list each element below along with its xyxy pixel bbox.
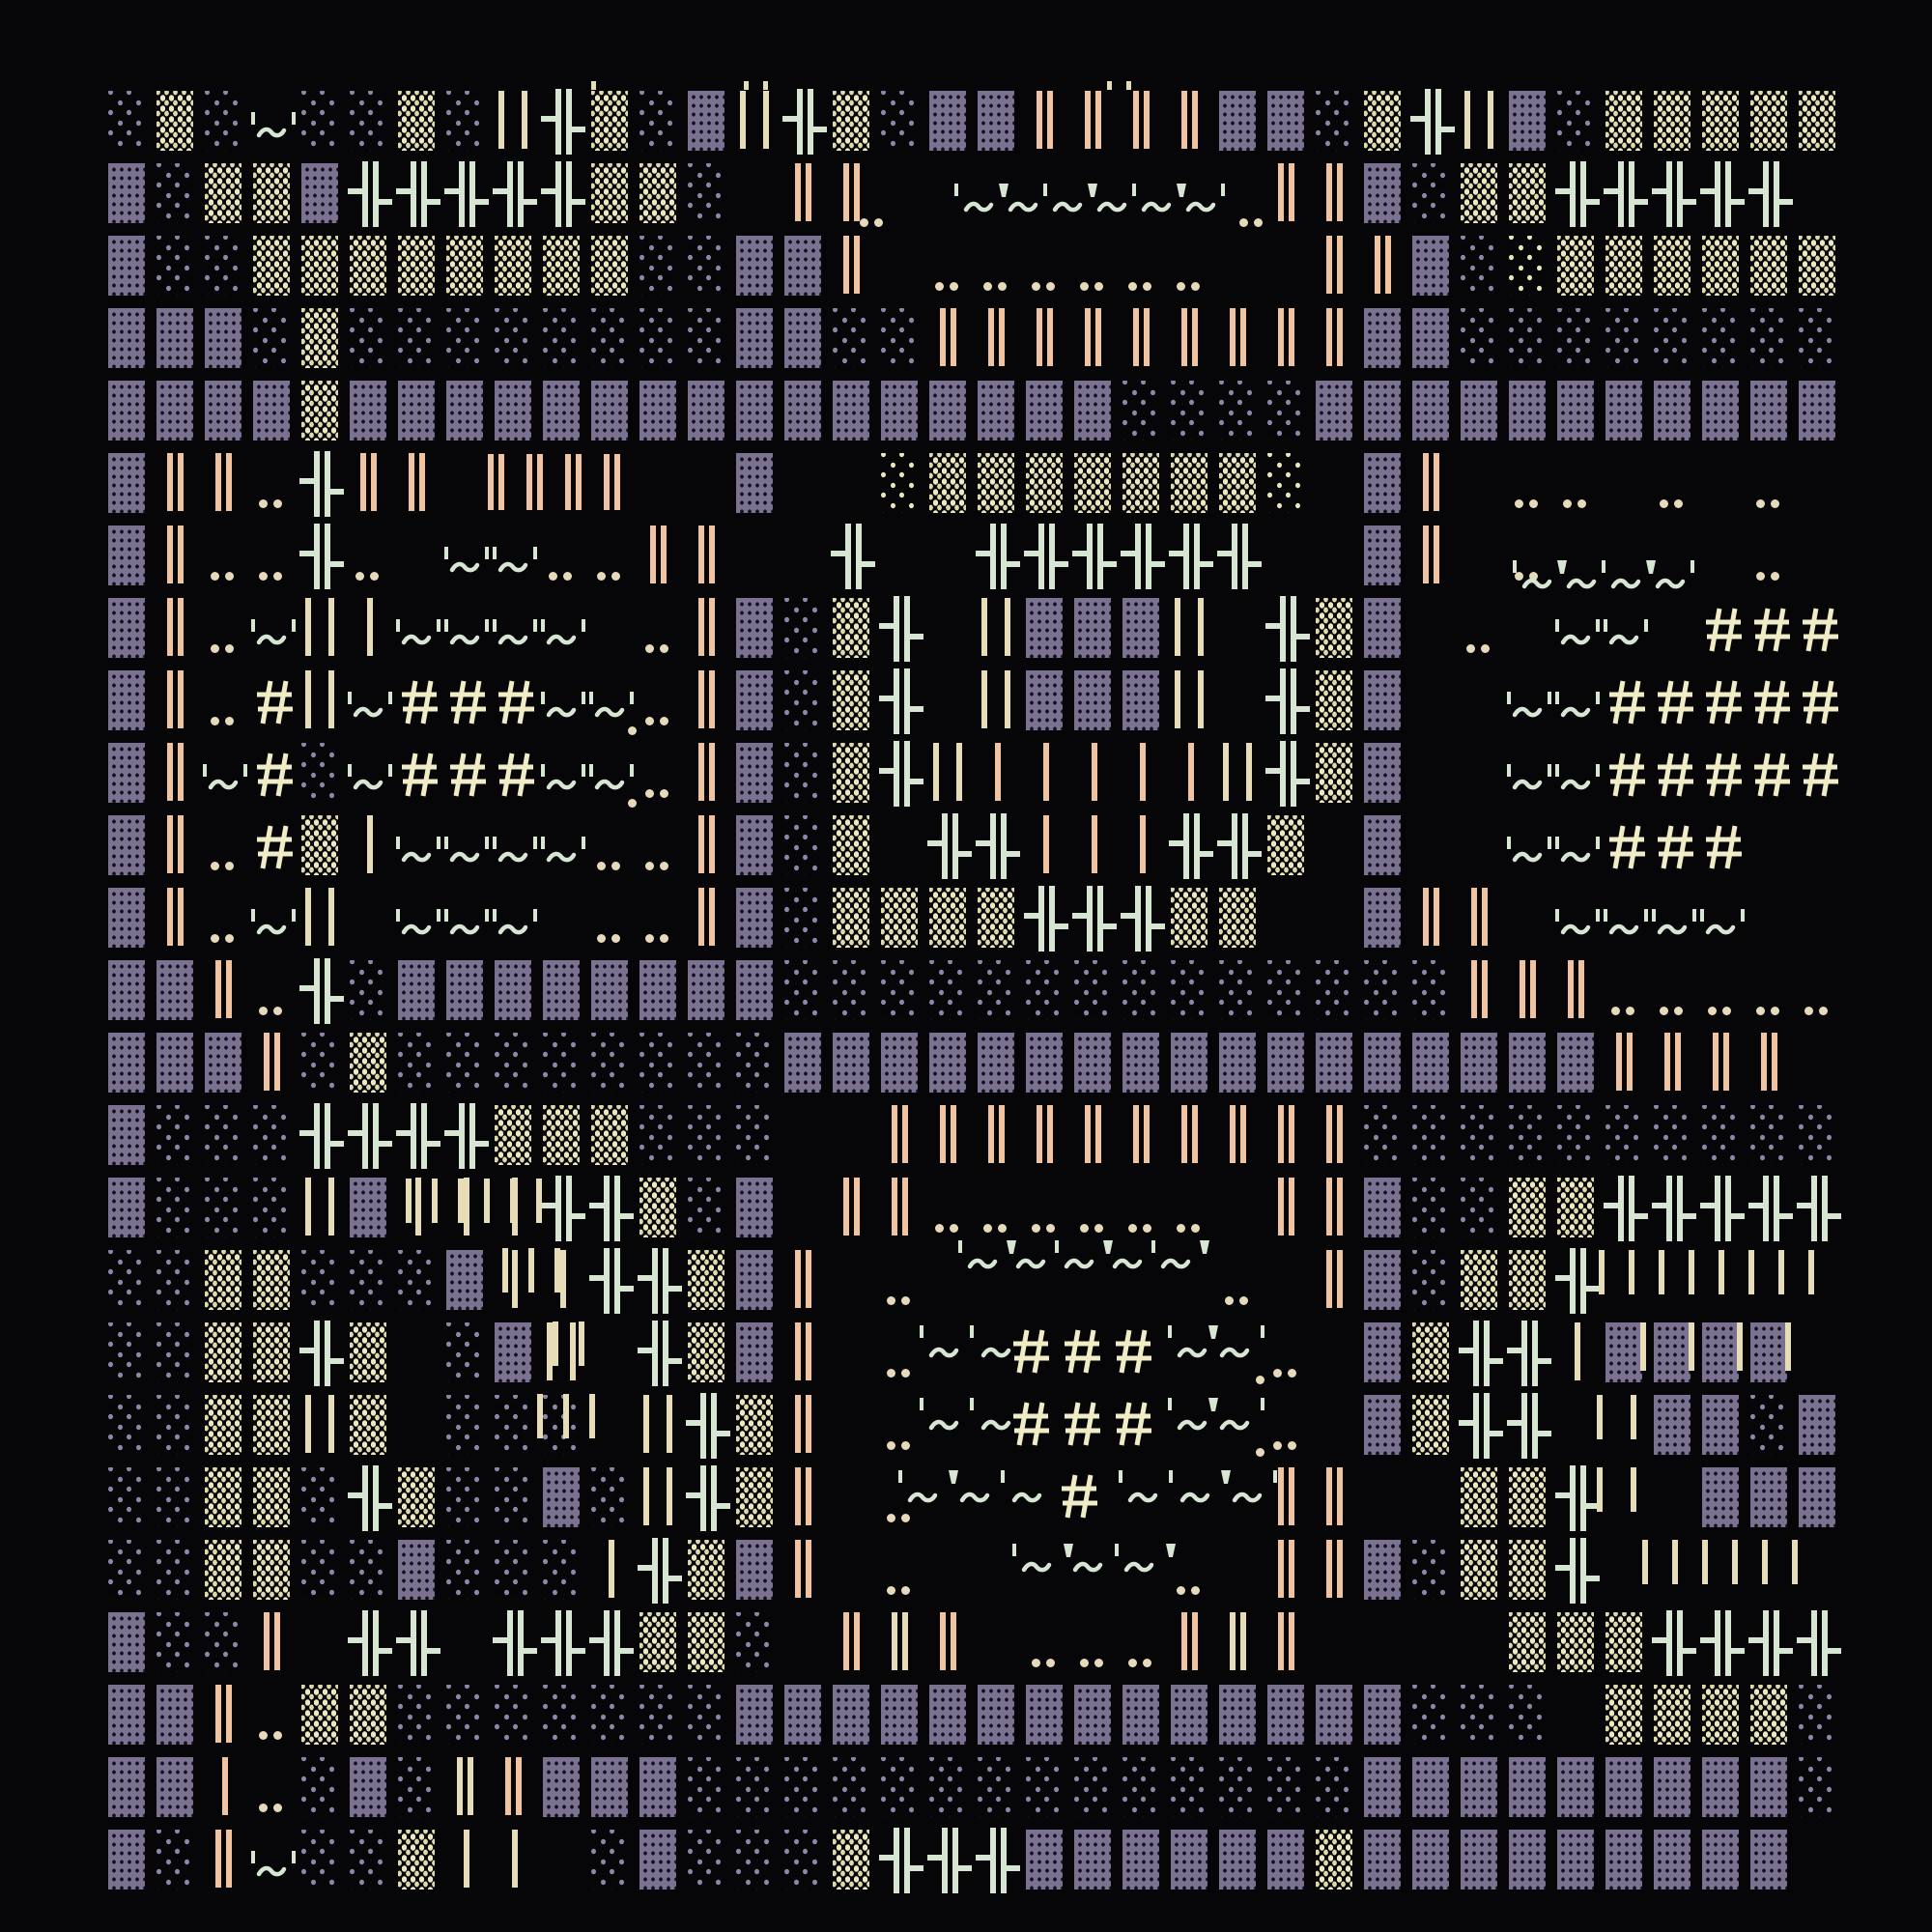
sparse-purple-dot-block (688, 308, 724, 368)
dot-pair-icon (1804, 1007, 1830, 1016)
vertical-bar-glyph (1689, 1322, 1694, 1371)
dense-purple-block (784, 1685, 821, 1745)
dot-pair-icon (211, 644, 236, 654)
dense-purple-block (1605, 1322, 1642, 1382)
cross-icon (1652, 1610, 1696, 1676)
cross-icon (976, 813, 1020, 879)
dense-purple-block (1364, 526, 1401, 585)
cross-icon (1121, 524, 1165, 589)
sparse-purple-dot-block (1557, 91, 1594, 151)
quote-tick-icon (1555, 619, 1559, 632)
dot-pair-icon (887, 1441, 912, 1451)
sparse-purple-dot-block (688, 1105, 724, 1165)
dense-cream-dot-block (1750, 1685, 1787, 1745)
dense-cream-dot-block (1509, 1467, 1546, 1527)
double-quote-tick-icon (1064, 1544, 1073, 1557)
sparse-purple-dot-block (398, 1250, 435, 1310)
quote-tilde-quote-glyph (396, 909, 440, 938)
tilde-icon (1609, 923, 1638, 935)
tilde-icon (257, 923, 286, 935)
dense-cream-dot-block (1316, 743, 1352, 803)
vertical-bar-glyph (1230, 1612, 1246, 1670)
sparse-purple-dot-block (156, 1322, 193, 1382)
dense-purple-block (1509, 1757, 1546, 1817)
hash-icon (1657, 823, 1693, 871)
cross-icon (638, 1321, 682, 1386)
sparse-purple-dot-block (1171, 960, 1207, 1020)
vertical-bar-glyph (264, 1612, 280, 1670)
dense-purple-block (1122, 1830, 1159, 1889)
sparse-purple-dot-block (446, 1322, 483, 1382)
quote-tick-icon (954, 184, 958, 196)
sparse-purple-dot-block (591, 1830, 628, 1889)
dense-purple-block (1799, 381, 1835, 440)
sparse-purple-dot-block (301, 1467, 338, 1527)
vertical-bar-glyph (1778, 1250, 1784, 1294)
dense-purple-block (1461, 1830, 1497, 1889)
quote-tick-icon (1001, 1470, 1005, 1483)
dot-pair-icon (1080, 282, 1105, 292)
vertical-bar-glyph (409, 453, 425, 511)
dense-cream-dot-block (1074, 453, 1111, 513)
dot-pair-icon (259, 1731, 284, 1741)
cross-icon (1072, 524, 1117, 589)
dense-purple-block (1557, 1830, 1594, 1889)
vertical-bar-glyph (1037, 91, 1053, 149)
dense-purple-block (446, 381, 483, 440)
vertical-bar-glyph (795, 163, 811, 221)
sparse-purple-dot-block (156, 1178, 193, 1237)
dense-purple-block (301, 163, 338, 223)
vertical-bar-glyph (1326, 1178, 1343, 1236)
vertical-bar-glyph (1631, 1395, 1636, 1439)
vertical-bar-glyph (1326, 1250, 1343, 1308)
dense-purple-block (543, 1467, 580, 1527)
dense-purple-block (639, 960, 676, 1020)
dense-cream-dot-block (1799, 236, 1835, 296)
dense-cream-dot-block (1654, 236, 1690, 296)
cross-icon (541, 1176, 585, 1241)
quote-tick-icon (1043, 184, 1047, 196)
sparse-purple-dot-block (833, 308, 869, 368)
dot-pair-icon (1466, 644, 1492, 654)
sparse-purple-dot-block (156, 1830, 193, 1889)
vertical-bar-glyph (940, 308, 956, 366)
dense-cream-dot-block (736, 1467, 773, 1527)
dense-purple-block (736, 670, 773, 730)
dense-cream-dot-block (1557, 1612, 1594, 1672)
edge-stub-glyph (591, 81, 596, 90)
dense-cream-dot-block (205, 163, 241, 223)
sparse-purple-dot-block (1122, 1757, 1159, 1817)
dense-purple-block (1364, 1322, 1401, 1382)
vertical-bar-glyph (698, 526, 715, 583)
quote-tick-icon (1168, 1325, 1172, 1338)
dense-purple-block (1364, 1757, 1401, 1817)
tilde-icon (450, 561, 479, 573)
quote-tilde-quote-glyph (251, 112, 296, 141)
tilde-icon (1561, 779, 1590, 790)
dot-pair-icon (1177, 1224, 1202, 1234)
vertical-bar-glyph (464, 1830, 469, 1888)
dense-cream-dot-block (688, 1250, 724, 1310)
dense-purple-block (1509, 91, 1546, 151)
dense-purple-block (784, 308, 821, 368)
quote-tilde-quote-glyph (493, 547, 537, 576)
tilde-icon (209, 779, 238, 790)
vertical-bar-glyph (526, 454, 543, 510)
tilde-icon (498, 634, 527, 645)
dot-pair-icon (259, 572, 284, 582)
sparse-purple-dot-block (205, 1105, 241, 1165)
quote-tick-icon (348, 764, 352, 777)
sparse-purple-dot-block (495, 308, 531, 368)
sparse-purple-dot-block (398, 1033, 435, 1093)
dense-purple-block (1364, 598, 1401, 658)
dense-purple-block (1702, 1830, 1739, 1889)
dense-cream-dot-block (1316, 670, 1352, 730)
sparse-purple-dot-block (350, 308, 386, 368)
tilde-icon (595, 779, 624, 790)
cross-icon (589, 1610, 634, 1676)
vertical-bar-glyph (305, 1395, 334, 1453)
dot-pair-icon (1273, 1369, 1298, 1378)
sparse-purple-dot-block (1461, 1105, 1497, 1165)
sparse-purple-dot-block (253, 308, 290, 368)
tilde-icon (1220, 1419, 1249, 1431)
vertical-bar-glyph (1326, 163, 1343, 221)
dense-purple-block (1364, 308, 1401, 368)
sparse-purple-dot-block (1364, 960, 1401, 1020)
quote-tick-icon (348, 692, 352, 704)
sparse-purple-dot-block (301, 1250, 338, 1310)
quote-tick-icon (396, 619, 400, 632)
quote-tick-icon (1507, 692, 1511, 704)
cross-icon (1507, 1393, 1551, 1459)
dense-purple-block (253, 381, 290, 440)
vertical-bar-glyph (589, 1394, 595, 1438)
quote-tick-icon (437, 619, 440, 632)
sparse-purple-dot-block (591, 308, 628, 368)
dense-purple-block (156, 1757, 193, 1817)
sparse-purple-dot-block (1750, 1395, 1787, 1455)
dense-purple-block (156, 1685, 193, 1745)
quote-tick-icon (1012, 1544, 1016, 1556)
vertical-bar-glyph (1326, 1467, 1343, 1525)
dense-purple-block (1122, 1685, 1159, 1745)
sparse-purple-dot-block (495, 1540, 531, 1600)
hash-icon (1802, 678, 1838, 726)
dense-cream-dot-block (156, 91, 193, 151)
dense-purple-block (398, 960, 435, 1020)
quote-tick-icon (1151, 1240, 1155, 1253)
dense-purple-block (639, 1830, 676, 1889)
sparse-purple-dot-block (688, 1685, 724, 1745)
vertical-bar-glyph (563, 1394, 569, 1438)
quote-tilde-quote-glyph (1555, 837, 1600, 866)
quote-tick-icon (1555, 764, 1559, 777)
vertical-bar-glyph (1597, 1467, 1603, 1512)
dense-cream-dot-block (833, 1830, 869, 1889)
quote-tilde-quote-glyph (1507, 837, 1551, 866)
dense-purple-block (1364, 381, 1401, 440)
quote-tick-icon (1596, 692, 1600, 704)
sparse-purple-dot-block (205, 91, 241, 151)
vertical-bar-glyph (1181, 1612, 1198, 1670)
cross-icon (348, 1610, 392, 1676)
cross-icon (879, 741, 923, 807)
sparse-purple-dot-block (495, 1395, 531, 1455)
tilde-icon (547, 779, 576, 790)
quote-tilde-quote-glyph (444, 619, 489, 648)
vertical-bar-glyph (1230, 308, 1246, 366)
quote-tick-icon (251, 1851, 255, 1863)
dense-purple-block (1654, 1322, 1690, 1382)
cross-icon (1652, 161, 1696, 227)
dense-purple-block (350, 1178, 386, 1237)
sparse-purple-dot-block (639, 1033, 676, 1093)
quote-tick-icon (485, 547, 489, 559)
quote-tilde-quote-glyph (1555, 764, 1600, 793)
vertical-bar-glyph (432, 1179, 438, 1223)
dot-pair-icon (628, 799, 638, 809)
sparse-purple-dot-block (1799, 308, 1835, 368)
sparse-purple-dot-block (784, 815, 821, 875)
dot-pair-icon (887, 1296, 912, 1306)
vertical-bar-glyph (305, 1178, 334, 1236)
dense-purple-block (1171, 1685, 1207, 1745)
vertical-bar-glyph (215, 1685, 232, 1743)
quote-tick-icon (1596, 837, 1600, 849)
vertical-bar-glyph (1326, 236, 1343, 294)
sparse-purple-dot-block (156, 1250, 193, 1310)
tilde-icon (257, 127, 286, 138)
vertical-bar-glyph (1043, 743, 1049, 801)
dense-purple-block (1557, 1033, 1594, 1093)
dense-purple-block (591, 381, 628, 440)
tilde-icon (1561, 706, 1590, 718)
cross-icon (1604, 1176, 1648, 1241)
dense-cream-dot-block (205, 1467, 241, 1527)
dense-purple-block (736, 1178, 773, 1237)
vertical-bar-glyph (940, 1105, 956, 1163)
quote-tick-icon (1555, 909, 1559, 922)
sparse-purple-dot-block (784, 1757, 821, 1817)
cross-icon (493, 161, 537, 227)
dense-cream-dot-block (639, 1178, 676, 1237)
quote-tick-icon (292, 909, 296, 922)
sparse-purple-dot-block (108, 1250, 145, 1310)
vertical-bar-glyph (1092, 743, 1097, 801)
sparse-purple-dot-block (350, 1250, 386, 1310)
dot-pair-icon (1563, 499, 1588, 509)
quote-tick-icon (251, 619, 255, 632)
sparse-purple-dot-block (446, 1395, 483, 1455)
dense-purple-block (929, 91, 966, 151)
sparse-purple-dot-block (398, 308, 435, 368)
sparse-purple-dot-block (1412, 1685, 1449, 1745)
vertical-bar-glyph (843, 163, 860, 221)
dense-purple-block (1364, 670, 1401, 730)
quote-tick-icon (292, 112, 296, 125)
dense-cream-dot-block (253, 236, 290, 296)
dense-cream-dot-block (1509, 163, 1546, 223)
cross-icon (1700, 161, 1745, 227)
dense-cream-dot-block (301, 308, 338, 368)
quote-tick-icon (1596, 764, 1600, 777)
vertical-bar-glyph (484, 1179, 490, 1223)
quote-tilde-quote-glyph (1604, 619, 1648, 648)
dot-pair-icon (597, 934, 622, 944)
dot-pair-icon (1256, 1448, 1265, 1458)
vertical-bar-glyph (643, 1395, 672, 1453)
sparse-purple-dot-block (205, 1178, 241, 1237)
vertical-bar-glyph (554, 1248, 560, 1293)
cross-icon (348, 1103, 392, 1169)
vertical-bar-glyph (1326, 308, 1343, 366)
vertical-bar-glyph (415, 1178, 421, 1236)
dense-purple-block (156, 381, 193, 440)
vertical-bar-glyph (1761, 1033, 1777, 1091)
quote-tick-icon (493, 619, 497, 632)
dense-purple-block (1509, 381, 1546, 440)
sparse-purple-dot-block (543, 308, 580, 368)
quote-tick-icon (292, 619, 296, 632)
sparse-purple-dot-block (1654, 308, 1690, 368)
dense-purple-block (1122, 1033, 1159, 1093)
dense-purple-block (1799, 1395, 1835, 1455)
dense-purple-block (1461, 381, 1497, 440)
vertical-bar-glyph (1629, 1250, 1634, 1294)
vertical-bar-glyph (1140, 815, 1146, 873)
tilde-icon (547, 634, 576, 645)
cross-icon (299, 1321, 344, 1386)
vertical-bar-glyph (1597, 1395, 1603, 1439)
quote-tick-icon (251, 112, 255, 125)
sparse-purple-dot-block (205, 236, 241, 296)
sparse-purple-dot-block (1316, 91, 1352, 151)
vertical-bar-glyph (843, 236, 860, 294)
sparse-purple-dot-block (1557, 1105, 1594, 1165)
dense-cream-dot-block (1364, 91, 1401, 151)
dot-pair-icon (259, 1007, 284, 1016)
quote-tick-icon (292, 1851, 296, 1863)
cross-icon (444, 161, 489, 227)
sparse-purple-dot-block (543, 1685, 580, 1745)
dense-purple-block (1654, 381, 1690, 440)
dense-purple-block (350, 1757, 386, 1817)
quote-tilde-quote-glyph (1507, 764, 1551, 793)
sparse-purple-dot-block (1509, 1685, 1546, 1745)
cross-icon (686, 1393, 730, 1459)
quote-tick-icon (203, 764, 207, 777)
vertical-bar-glyph (1713, 1033, 1729, 1091)
tilde-icon (1567, 578, 1596, 589)
dense-purple-block (1799, 1467, 1835, 1527)
sparse-purple-dot-block (688, 1757, 724, 1817)
edge-stub-glyph (744, 81, 749, 90)
dense-purple-block (446, 1250, 483, 1310)
cross-icon (348, 1465, 392, 1531)
quote-tick-icon (582, 764, 585, 777)
sparse-purple-dot-block (1461, 236, 1497, 296)
dense-purple-block (205, 1033, 241, 1093)
sparse-purple-dot-block (1412, 1540, 1449, 1600)
dense-cream-dot-block (1509, 1250, 1546, 1310)
sparse-purple-dot-block (1702, 1105, 1739, 1165)
dense-purple-block (736, 815, 773, 875)
dense-purple-block (398, 1540, 435, 1600)
quote-tilde-quote-glyph (1652, 909, 1696, 938)
quote-tick-icon (1700, 909, 1704, 922)
vertical-bar-glyph (167, 526, 184, 583)
dot-pair-icon (1756, 499, 1781, 509)
hash-icon (1657, 678, 1693, 726)
dense-purple-block (1557, 1757, 1594, 1817)
dot-pair-icon (1515, 499, 1540, 509)
quote-tilde-quote-glyph (541, 692, 585, 721)
dense-cream-dot-block (398, 1830, 435, 1889)
dense-purple-block (495, 1322, 531, 1382)
dot-pair-icon (645, 717, 670, 726)
vertical-bar-glyph (892, 1612, 908, 1670)
sparse-purple-dot-block (639, 91, 676, 151)
vertical-bar-glyph (1278, 308, 1294, 366)
quote-tilde-quote-glyph (493, 909, 537, 938)
dot-pair-icon (1273, 1441, 1298, 1451)
quote-tilde-quote-glyph (1555, 909, 1600, 938)
sparse-purple-dot-block (1364, 1105, 1401, 1165)
cross-icon (299, 1103, 344, 1169)
quote-tick-icon (485, 837, 489, 849)
hash-icon (449, 678, 486, 726)
tilde-icon (960, 1492, 989, 1503)
dense-purple-block (978, 381, 1014, 440)
cross-icon (1604, 161, 1648, 227)
dot-pair-icon (887, 1514, 912, 1523)
dense-cream-dot-block (833, 91, 869, 151)
quote-tick-icon (541, 692, 545, 704)
dense-purple-block (784, 236, 821, 296)
dense-purple-block (1412, 236, 1449, 296)
dense-cream-dot-block (1557, 1178, 1594, 1237)
dense-cream-dot-block (350, 1395, 386, 1455)
sparse-purple-dot-block (1267, 381, 1304, 440)
sparse-purple-dot-block (1219, 381, 1256, 440)
vertical-bar-glyph (1140, 743, 1146, 801)
sparse-purple-dot-block (1122, 960, 1159, 1020)
dense-purple-block (543, 381, 580, 440)
dense-purple-block (1316, 381, 1352, 440)
dense-purple-block (1026, 598, 1063, 658)
dense-cream-dot-block (1605, 91, 1642, 151)
tilde-icon (1016, 1258, 1045, 1269)
cross-icon (927, 813, 972, 879)
sparse-purple-dot-block (591, 1467, 628, 1527)
sparse-purple-dot-block (784, 1830, 821, 1889)
dense-cream-dot-block (1654, 1685, 1690, 1745)
quote-tick-icon (1604, 909, 1607, 922)
sparse-purple-dot-block (350, 1830, 386, 1889)
tilde-icon (1658, 923, 1687, 935)
quote-tick-icon (1692, 909, 1696, 922)
dense-purple-block (1364, 453, 1401, 513)
sparse-purple-dot-block (543, 1540, 580, 1600)
quote-tick-icon (920, 1398, 923, 1410)
quote-tick-icon (485, 909, 489, 922)
dot-pair-icon (645, 789, 670, 799)
vertical-bar-glyph (1672, 1540, 1678, 1584)
